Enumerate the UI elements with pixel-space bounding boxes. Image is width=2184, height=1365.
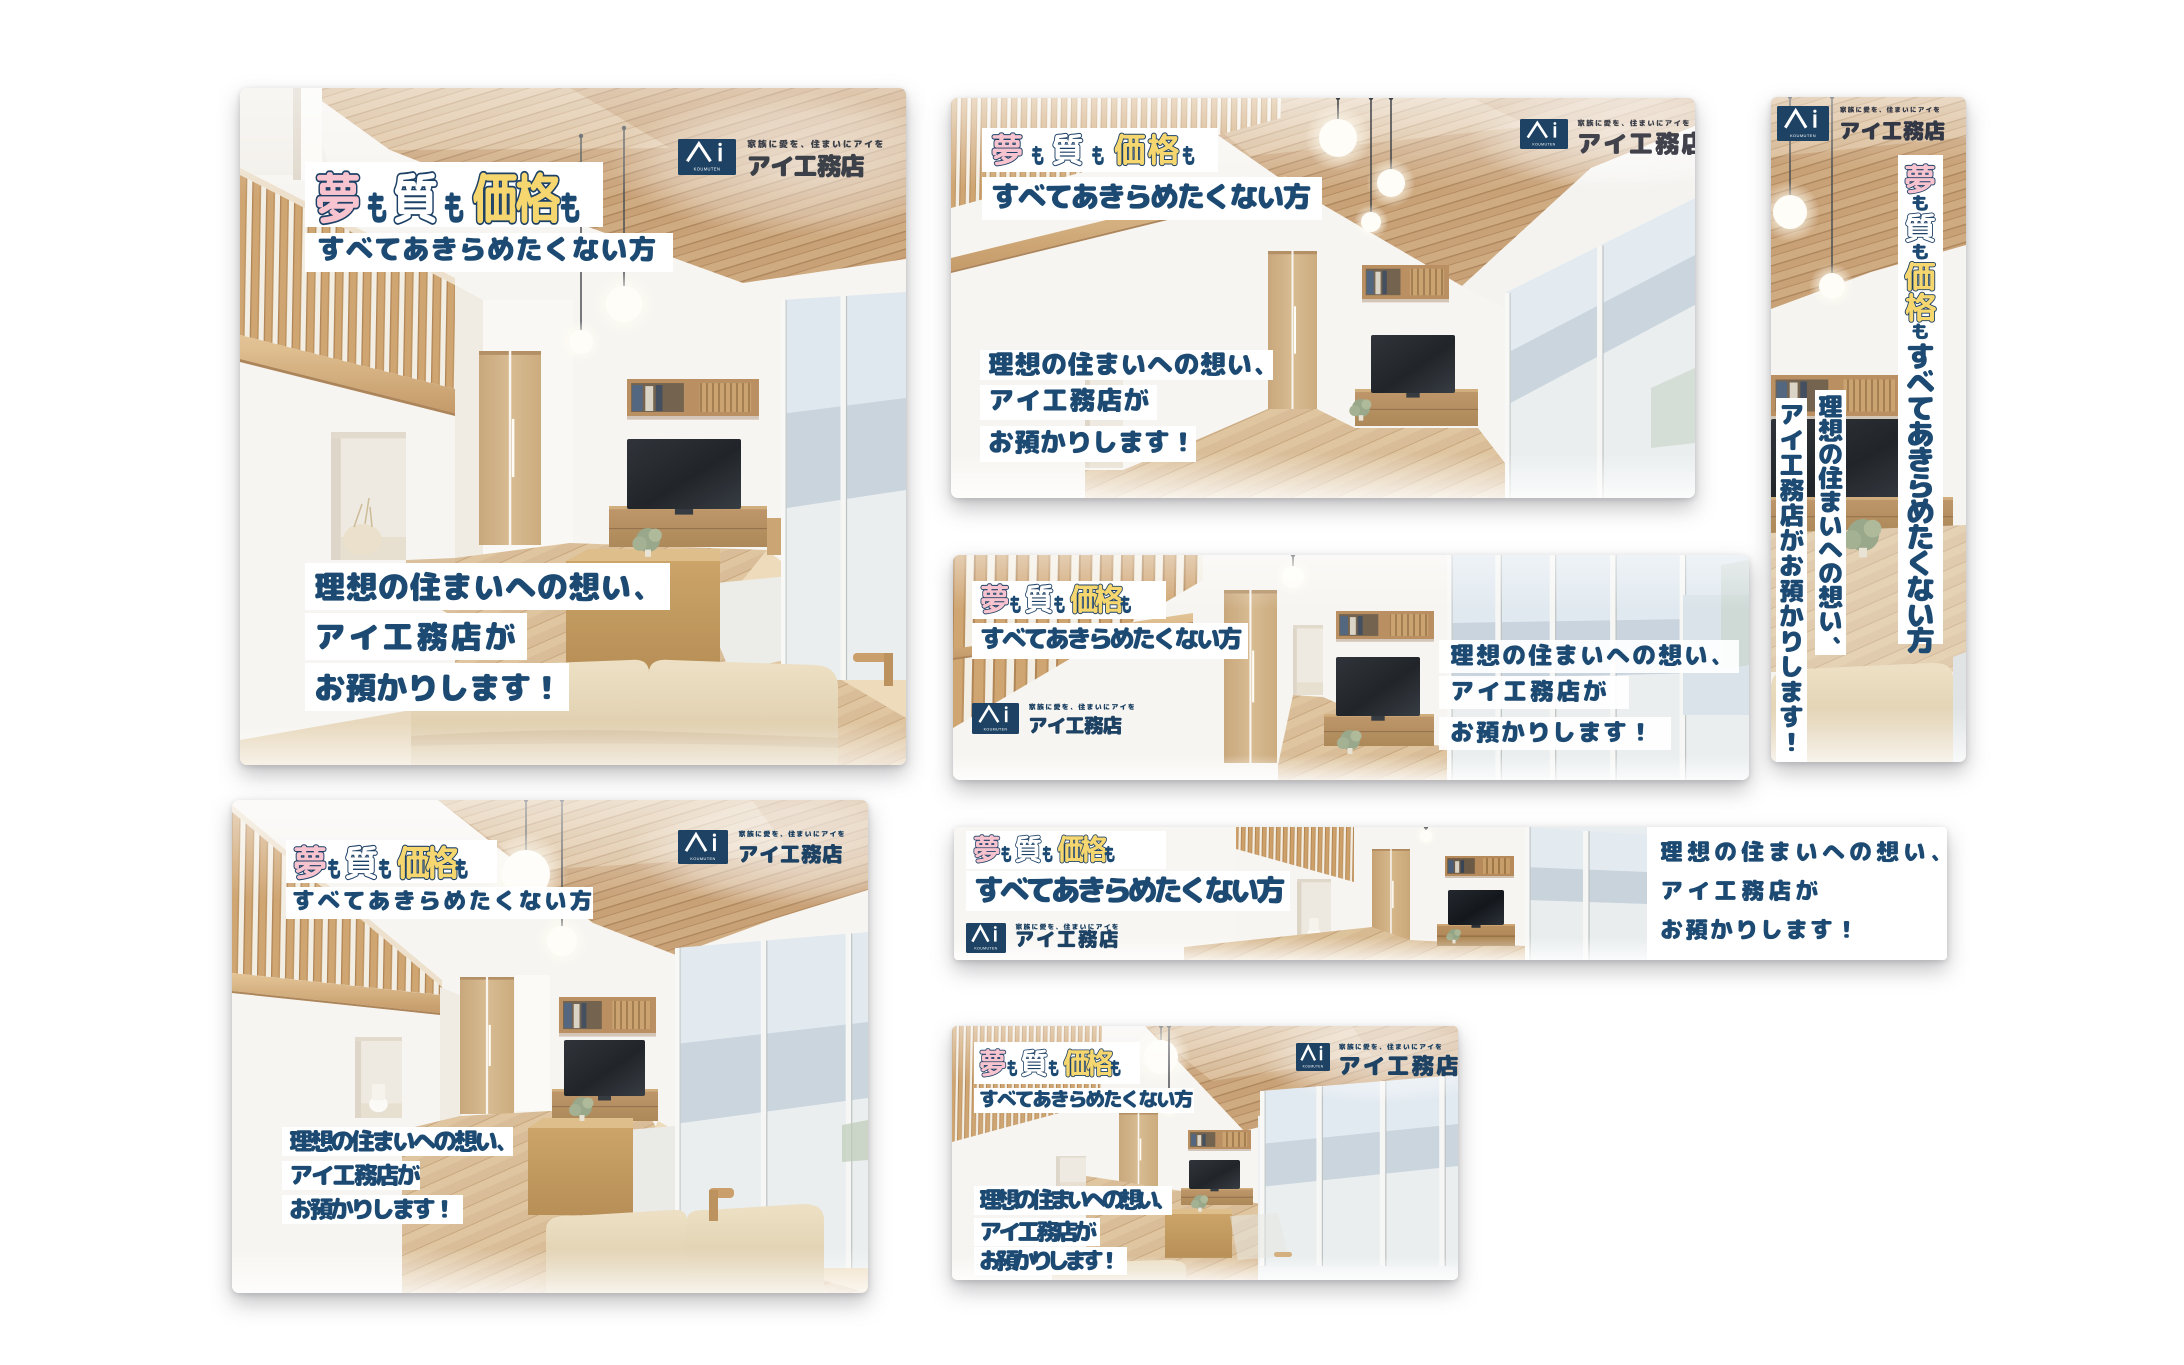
svg-text:KOUMUTEN: KOUMUTEN <box>690 856 715 861</box>
svg-text:KOUMUTEN: KOUMUTEN <box>694 167 721 172</box>
svg-text:KOUMUTEN: KOUMUTEN <box>974 946 997 950</box>
svg-text:KOUMUTEN: KOUMUTEN <box>984 727 1008 731</box>
svg-text:KOUMUTEN: KOUMUTEN <box>1303 1065 1324 1069</box>
svg-text:KOUMUTEN: KOUMUTEN <box>1790 133 1816 138</box>
svg-text:KOUMUTEN: KOUMUTEN <box>1532 142 1555 146</box>
